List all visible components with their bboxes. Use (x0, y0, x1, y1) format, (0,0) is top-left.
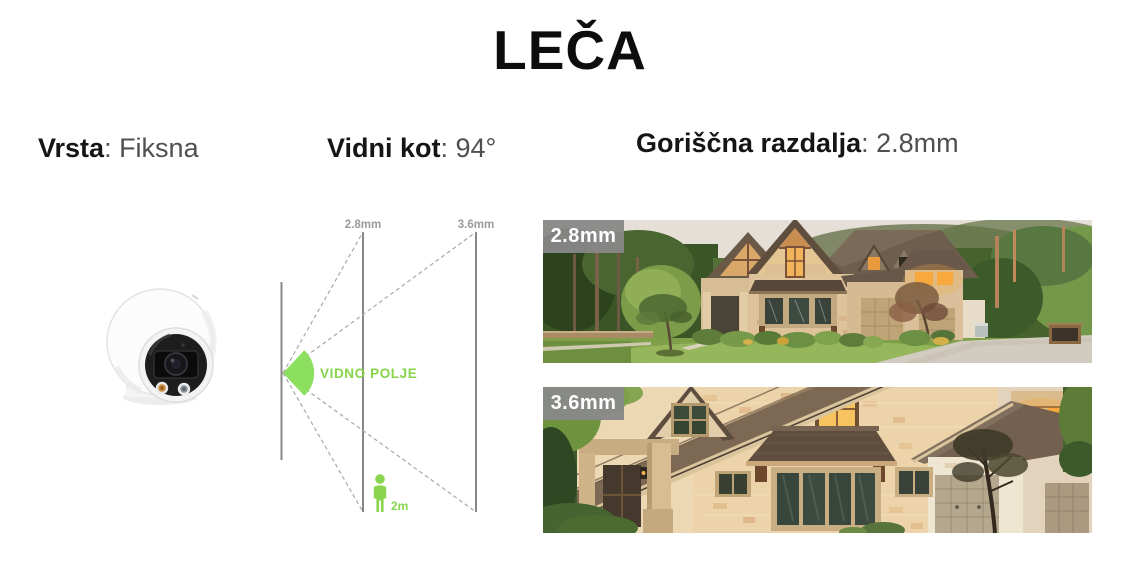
spec-view-angle-label: Vidni kot (327, 133, 441, 163)
fov-diagram: 2.8mm 3.6mm VIDNO POLJE 2m (260, 210, 530, 530)
person-height-label: 2m (391, 499, 408, 513)
fov-diagram-canvas: 2.8mm 3.6mm VIDNO POLJE 2m (260, 210, 530, 530)
sample-photo-tele: 3.6mm (543, 387, 1092, 533)
house-photo-tele-illustration (543, 387, 1092, 533)
fov-cone-icon (283, 350, 314, 396)
page-title: LEČA (0, 18, 1140, 82)
turret-camera-icon (100, 287, 226, 407)
lens-infographic-page: LEČA Vrsta: Fiksna Vidni kot: 94° Gorišč… (0, 0, 1140, 569)
spec-focal-length-label: Goriščna razdalja (636, 128, 861, 158)
spec-lens-type: Vrsta: Fiksna (38, 133, 199, 164)
near-line-label: 2.8mm (345, 219, 381, 231)
spec-lens-type-label: Vrsta (38, 133, 104, 163)
sample-photo-wide: 2.8mm (543, 220, 1092, 363)
spec-focal-length: Goriščna razdalja: 2.8mm (636, 128, 959, 159)
spec-view-angle-value: : 94° (441, 133, 497, 163)
fov-label: VIDNO POLJE (320, 366, 417, 381)
photo-badge-wide: 2.8mm (543, 220, 624, 253)
house-photo-wide-illustration (543, 220, 1092, 363)
photo-badge-tele: 3.6mm (543, 387, 624, 420)
person-icon (374, 474, 386, 512)
far-line-label: 3.6mm (458, 219, 494, 231)
spec-focal-length-value: : 2.8mm (861, 128, 959, 158)
camera-product-image (100, 287, 226, 407)
spec-view-angle: Vidni kot: 94° (327, 133, 496, 164)
spec-lens-type-value: : Fiksna (104, 133, 199, 163)
